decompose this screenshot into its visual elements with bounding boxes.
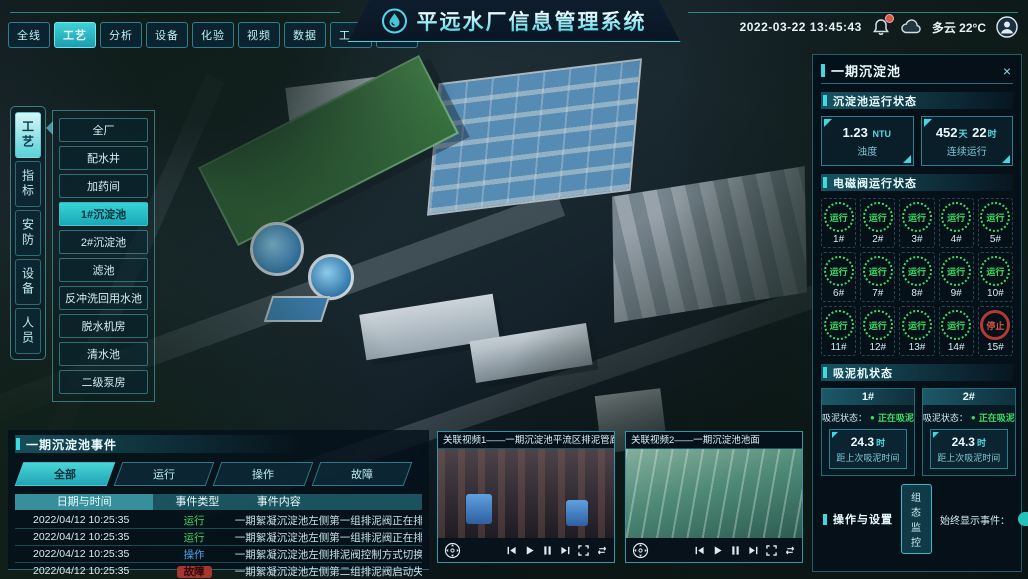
valve-id: 13# — [900, 342, 933, 353]
accent-bar — [823, 177, 827, 188]
process-submenu: 全厂配水井加药间1#沉淀池2#沉淀池滤池反冲洗回用水池脱水机房清水池二级泵房 — [52, 110, 155, 402]
pause-icon[interactable] — [730, 545, 741, 556]
valve-status-cell: 运行 3# — [899, 198, 934, 248]
submenu-item[interactable]: 配水井 — [59, 146, 148, 170]
cloud-icon — [900, 19, 922, 35]
valve-state-label: 运行 — [986, 265, 1004, 278]
valve-state-label: 运行 — [908, 265, 926, 278]
ptz-pan-control-icon[interactable] — [444, 542, 461, 559]
valve-status-cell: 运行 13# — [899, 306, 934, 356]
ptz-pan-control-icon[interactable] — [632, 542, 649, 559]
valve-status-ring: 运行 — [824, 202, 854, 232]
section-header-valves: 电磁阀运行状态 — [821, 174, 1013, 191]
mud-state-label: 吸泥状态： — [923, 411, 968, 424]
top-nav-tab[interactable]: 全线 — [8, 22, 50, 48]
valve-state-label: 运行 — [830, 319, 848, 332]
valve-status-ring: 运行 — [863, 202, 893, 232]
valve-status-ring: 运行 — [824, 310, 854, 340]
always-show-events-toggle[interactable] — [1018, 512, 1028, 526]
submenu-item[interactable]: 1#沉淀池 — [59, 202, 148, 226]
mud-state-label: 吸泥状态： — [822, 411, 867, 424]
valve-status-ring: 运行 — [980, 202, 1010, 232]
video-panel: 关联视频1——一期沉淀池平流区排泥管廊 — [437, 431, 615, 563]
running-dot-icon: ● — [870, 413, 875, 422]
play-icon[interactable] — [524, 545, 535, 556]
video-controls — [626, 538, 802, 562]
detail-panel-title: 一期沉淀池 — [831, 61, 1001, 80]
valve-status-cell: 运行 8# — [899, 252, 934, 302]
valve-id: 4# — [940, 234, 973, 245]
valve-state-label: 运行 — [869, 211, 887, 224]
mud-sucker-card: 2# 吸泥状态： ● 正在吸泥 24.3时 距上次吸泥时间 — [922, 388, 1016, 476]
turbidity-label: 浊度 — [857, 143, 877, 158]
app-title: 平远水厂信息管理系统 — [417, 6, 647, 36]
valve-status-ring: 运行 — [824, 256, 854, 286]
events-filter-tab[interactable]: 故障 — [312, 462, 413, 486]
valve-status-ring: 运行 — [941, 256, 971, 286]
valve-id: 3# — [900, 234, 933, 245]
accent-bar — [823, 95, 827, 106]
event-time: 2022/04/12 10:25:35 — [15, 531, 153, 543]
runtime-hours: 22 — [972, 125, 986, 140]
event-type-badge: 运行 — [153, 530, 234, 545]
pause-icon[interactable] — [542, 545, 553, 556]
detail-panel: 一期沉淀池 × 沉淀池运行状态 1.23 NTU 浊度 452天 22时 连续运… — [812, 54, 1022, 572]
submenu-item[interactable]: 2#沉淀池 — [59, 230, 148, 254]
valve-state-label: 运行 — [830, 211, 848, 224]
submenu-item[interactable]: 反冲洗回用水池 — [59, 286, 148, 310]
avatar[interactable] — [996, 16, 1018, 38]
event-row[interactable]: 2022/04/12 10:25:35 故障 一期絮凝沉淀池左侧第二组排泥阀启动… — [15, 563, 422, 579]
valve-id: 12# — [861, 342, 894, 353]
valve-id: 9# — [940, 288, 973, 299]
top-nav-tab[interactable]: 设备 — [146, 22, 188, 48]
valve-state-label: 运行 — [986, 211, 1004, 224]
skip-back-icon[interactable] — [694, 545, 705, 556]
turbidity-stat: 1.23 NTU 浊度 — [821, 116, 914, 166]
video-title: 关联视频1——一期沉淀池平流区排泥管廊 — [438, 432, 614, 449]
accent-bar — [16, 438, 20, 450]
event-row[interactable]: 2022/04/12 10:25:35 运行 一期絮凝沉淀池左侧第一组排泥阀正在… — [15, 529, 422, 546]
loop-icon[interactable] — [784, 545, 796, 556]
valve-status-cell: 运行 5# — [978, 198, 1013, 248]
mud-sucker-id: 1# — [822, 389, 914, 405]
fullscreen-icon[interactable] — [578, 545, 589, 556]
valve-state-label: 停止 — [986, 319, 1004, 332]
fullscreen-icon[interactable] — [766, 545, 777, 556]
accent-bar — [821, 64, 825, 77]
runtime-days: 452 — [936, 125, 958, 140]
top-nav-tab[interactable]: 分析 — [100, 22, 142, 48]
section-header-operations: 操作与设置 — [821, 511, 893, 528]
valve-status-ring: 运行 — [902, 202, 932, 232]
bell-icon[interactable] — [872, 18, 890, 36]
runtime-stat: 452天 22时 连续运行 — [921, 116, 1014, 166]
events-panel-header: 一期沉淀池事件 — [15, 435, 422, 453]
valve-id: 5# — [979, 234, 1012, 245]
valve-state-label: 运行 — [947, 211, 965, 224]
header-decor-line — [688, 12, 1018, 13]
loop-icon[interactable] — [596, 545, 608, 556]
valve-status-ring: 运行 — [863, 310, 893, 340]
top-nav-tab[interactable]: 工艺 — [54, 22, 96, 48]
valve-state-label: 运行 — [947, 265, 965, 278]
side-nav-tab[interactable]: 设备 — [15, 259, 41, 305]
always-show-events-label: 始终显示事件： — [940, 512, 1010, 527]
valve-status-cell: 运行 14# — [939, 306, 974, 356]
event-content: 一期絮凝沉淀池左侧第二组排泥阀启动失败 — [235, 564, 422, 579]
valve-id: 6# — [822, 288, 855, 299]
video-panel: 关联视频2——一期沉淀池池面 — [625, 431, 803, 563]
accent-bar — [823, 514, 827, 525]
valve-status-cell: 运行 9# — [939, 252, 974, 302]
valve-status-ring: 运行 — [863, 256, 893, 286]
side-nav-tab[interactable]: 工艺 — [15, 112, 41, 158]
valve-id: 2# — [861, 234, 894, 245]
events-table-body: 2022/04/12 10:25:35 运行 一期絮凝沉淀池左侧第一组排泥阀正在… — [15, 512, 422, 579]
event-row[interactable]: 2022/04/12 10:25:35 操作 一期絮凝沉淀池左侧排泥阀控制方式切… — [15, 546, 422, 563]
valve-status-cell: 停止 15# — [978, 306, 1013, 356]
event-content: 一期絮凝沉淀池左侧第一组排泥阀正在排泥 — [235, 513, 422, 528]
mud-time-unit: 时 — [977, 438, 986, 448]
valve-status-cell: 运行 6# — [821, 252, 856, 302]
events-filter-tab[interactable]: 运行 — [114, 462, 215, 486]
video-panels: 关联视频1——一期沉淀池平流区排泥管廊 关联视频2——一期沉淀池池面 — [437, 431, 803, 563]
valve-state-label: 运行 — [908, 211, 926, 224]
valve-id: 7# — [861, 288, 894, 299]
event-time: 2022/04/12 10:25:35 — [15, 548, 153, 560]
valve-state-label: 运行 — [869, 265, 887, 278]
side-nav-tab[interactable]: 指标 — [15, 161, 41, 207]
app-title-bar: 平远水厂信息管理系统 — [348, 0, 681, 42]
video-feed[interactable] — [626, 449, 802, 538]
submenu-item[interactable]: 清水池 — [59, 342, 148, 366]
video-feed[interactable] — [438, 449, 614, 538]
valve-status-ring: 停止 — [980, 310, 1010, 340]
valve-status-cell: 运行 7# — [860, 252, 895, 302]
top-nav-tab[interactable]: 化验 — [192, 22, 234, 48]
skip-forward-icon[interactable] — [748, 545, 759, 556]
play-icon[interactable] — [712, 545, 723, 556]
event-row[interactable]: 2022/04/12 10:25:35 运行 一期絮凝沉淀池左侧第一组排泥阀正在… — [15, 512, 422, 529]
operations-row: 操作与设置 组态监控 始终显示事件： — [821, 484, 1013, 554]
valve-id: 15# — [979, 342, 1012, 353]
column-header-type: 事件类型 — [153, 494, 234, 510]
mud-time-value: 24.3 — [851, 435, 874, 449]
submenu-item[interactable]: 滤池 — [59, 258, 148, 282]
event-type-badge: 故障 — [153, 564, 234, 579]
mud-time-stat: 24.3时 距上次吸泥时间 — [829, 429, 907, 469]
valve-status-ring: 运行 — [902, 310, 932, 340]
valve-status-cell: 运行 1# — [821, 198, 856, 248]
header-decor-line — [10, 12, 340, 13]
mud-sucker-card: 1# 吸泥状态： ● 正在吸泥 24.3时 距上次吸泥时间 — [821, 388, 915, 476]
valve-state-label: 运行 — [908, 319, 926, 332]
mud-time-unit: 时 — [876, 438, 885, 448]
top-nav-tab[interactable]: 数据 — [284, 22, 326, 48]
skip-forward-icon[interactable] — [560, 545, 571, 556]
runtime-label: 连续运行 — [947, 143, 987, 158]
events-filter-tab[interactable]: 全部 — [15, 462, 116, 486]
mud-sucker-id: 2# — [923, 389, 1015, 405]
side-nav: 工艺指标安防设备人员 — [10, 106, 46, 360]
mud-time-value: 24.3 — [952, 435, 975, 449]
side-nav-tab[interactable]: 人员 — [15, 308, 41, 354]
valve-grid: 运行 1# 运行 2# 运行 3# 运行 4# 运行 5# 运行 6# — [821, 198, 1013, 356]
skip-back-icon[interactable] — [506, 545, 517, 556]
valve-status-cell: 运行 4# — [939, 198, 974, 248]
turbidity-value: 1.23 — [843, 125, 868, 140]
valve-status-ring: 运行 — [902, 256, 932, 286]
datetime: 2022-03-22 13:45:43 — [740, 20, 862, 34]
mud-state-value: 正在吸泥 — [979, 411, 1015, 424]
valve-status-cell: 运行 12# — [860, 306, 895, 356]
valve-state-label: 运行 — [869, 319, 887, 332]
notification-badge — [885, 14, 894, 23]
valve-status-cell: 运行 11# — [821, 306, 856, 356]
valve-id: 8# — [900, 288, 933, 299]
accent-bar — [823, 367, 827, 378]
submenu-item[interactable]: 二级泵房 — [59, 370, 148, 394]
column-header-time: 日期与时间 — [15, 494, 153, 510]
mud-time-stat: 24.3时 距上次吸泥时间 — [930, 429, 1008, 469]
mud-time-label: 距上次吸泥时间 — [830, 451, 906, 464]
weather-text: 多云 22°C — [932, 19, 986, 36]
logo-icon — [382, 8, 408, 34]
side-nav-tab[interactable]: 安防 — [15, 210, 41, 256]
video-title: 关联视频2——一期沉淀池池面 — [626, 432, 802, 449]
event-content: 一期絮凝沉淀池左侧排泥阀控制方式切换为手动 — [235, 547, 422, 562]
column-header-content: 事件内容 — [235, 494, 422, 510]
valve-id: 14# — [940, 342, 973, 353]
events-filter-tab[interactable]: 操作 — [213, 462, 314, 486]
turbidity-unit: NTU — [872, 129, 891, 139]
submenu-item[interactable]: 脱水机房 — [59, 314, 148, 338]
event-type-badge: 运行 — [153, 513, 234, 528]
events-panel: 一期沉淀池事件 全部运行操作故障 日期与时间 事件类型 事件内容 2022/04… — [8, 430, 429, 570]
event-type-badge: 操作 — [153, 547, 234, 562]
section-header-tank-status: 沉淀池运行状态 — [821, 92, 1013, 109]
valve-state-label: 运行 — [830, 265, 848, 278]
event-time: 2022/04/12 10:25:35 — [15, 565, 153, 577]
valve-id: 1# — [822, 234, 855, 245]
valve-status-ring: 运行 — [941, 310, 971, 340]
section-header-mud-suckers: 吸泥机状态 — [821, 364, 1013, 381]
valve-state-label: 运行 — [947, 319, 965, 332]
valve-status-cell: 运行 2# — [860, 198, 895, 248]
header-right: 2022-03-22 13:45:43 多云 22°C — [740, 16, 1018, 38]
top-nav-tab[interactable]: 视频 — [238, 22, 280, 48]
events-panel-title: 一期沉淀池事件 — [26, 436, 117, 453]
video-controls — [438, 538, 614, 562]
tank-stats: 1.23 NTU 浊度 452天 22时 连续运行 — [821, 116, 1013, 166]
mud-sucker-cards: 1# 吸泥状态： ● 正在吸泥 24.3时 距上次吸泥时间 2# 吸泥状态： ● — [821, 388, 1013, 476]
valve-id: 10# — [979, 288, 1012, 299]
mud-time-label: 距上次吸泥时间 — [931, 451, 1007, 464]
detail-panel-header: 一期沉淀池 × — [821, 62, 1013, 84]
events-filter-tabs: 全部运行操作故障 — [19, 462, 422, 486]
events-table-header: 日期与时间 事件类型 事件内容 — [15, 494, 422, 510]
dashboard: 全线工艺分析设备化验视频数据工单系统 平远水厂信息管理系统 2022-03-22… — [0, 0, 1028, 579]
valve-status-cell: 运行 10# — [978, 252, 1013, 302]
submenu-item[interactable]: 全厂 — [59, 118, 148, 142]
event-content: 一期絮凝沉淀池左侧第一组排泥阀正在排泥 — [235, 530, 422, 545]
mud-state-value: 正在吸泥 — [878, 411, 914, 424]
close-icon[interactable]: × — [1001, 64, 1013, 78]
valve-status-ring: 运行 — [941, 202, 971, 232]
valve-status-ring: 运行 — [980, 256, 1010, 286]
event-time: 2022/04/12 10:25:35 — [15, 514, 153, 526]
running-dot-icon: ● — [971, 413, 976, 422]
valve-id: 11# — [822, 342, 855, 353]
scada-monitor-button[interactable]: 组态监控 — [901, 484, 932, 554]
submenu-item[interactable]: 加药间 — [59, 174, 148, 198]
